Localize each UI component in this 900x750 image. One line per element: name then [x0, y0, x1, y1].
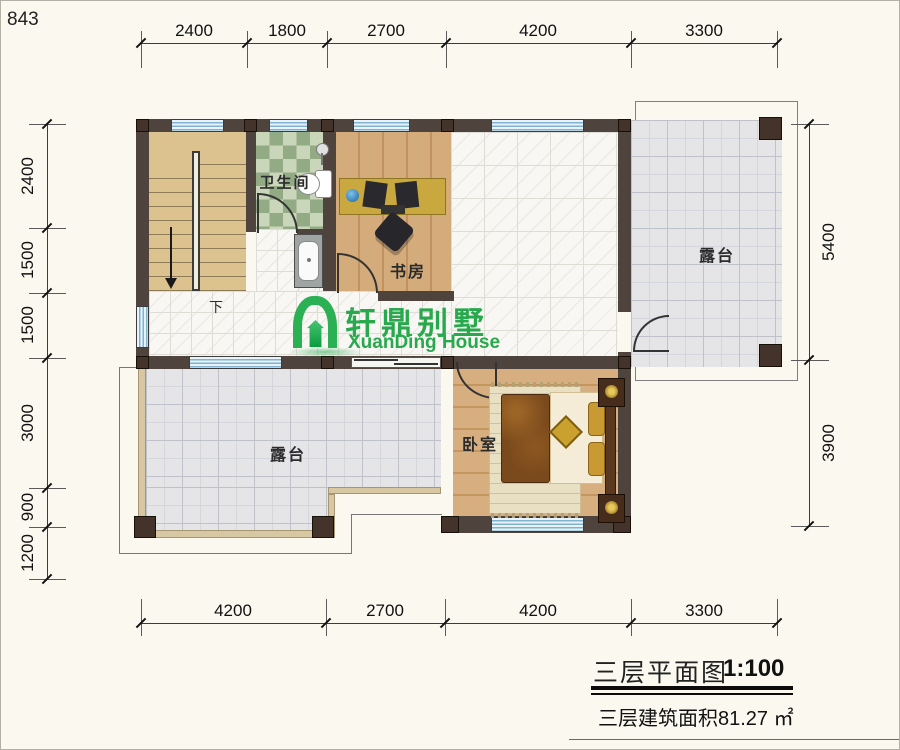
rug-fringe	[491, 382, 579, 387]
sliding-door-panel	[394, 363, 438, 365]
pillow	[588, 402, 605, 436]
dim-top-5: 3300	[685, 21, 723, 41]
area-note: 三层建筑面积81.27 ㎡	[598, 702, 794, 731]
terrace-outline	[119, 553, 352, 554]
dim-tick-mark	[247, 31, 248, 68]
nightstand-knob	[605, 501, 618, 514]
shower-stem	[321, 153, 323, 165]
study-label: 书房	[390, 258, 426, 282]
sink-drain	[307, 258, 311, 262]
terrace-column	[134, 516, 156, 538]
terrace-top-label: 露台	[699, 242, 735, 266]
column	[618, 119, 631, 132]
dim-tick-mark	[141, 599, 142, 636]
dim-left-5: 900	[18, 493, 38, 521]
plan-title: 三层平面图	[593, 653, 728, 689]
terrace-column	[312, 516, 334, 538]
bed-blanket	[501, 394, 550, 483]
dim-bottom-4: 3300	[685, 601, 723, 621]
column	[441, 356, 454, 369]
parapet	[328, 487, 441, 494]
dim-left-1: 2400	[18, 157, 38, 195]
bedroom-label: 卧室	[462, 431, 498, 455]
dim-top-1: 2400	[175, 21, 213, 41]
dim-right-2: 3900	[819, 424, 839, 462]
dim-top-4: 4200	[519, 21, 557, 41]
window	[269, 119, 308, 132]
page-code: 843	[7, 9, 39, 31]
dim-bottom-2: 2700	[366, 601, 404, 621]
window	[189, 356, 282, 369]
dim-line-right	[809, 124, 810, 526]
dim-left-6: 1200	[18, 534, 38, 572]
window	[491, 517, 584, 532]
floor-plan-page: 843 2400 1800 2700 4200 3300 4200 2700 4…	[0, 0, 900, 750]
stair-direction-label: 下	[209, 297, 225, 317]
dim-tick-mark	[777, 599, 778, 636]
window	[136, 306, 149, 348]
dim-right-1: 5400	[819, 223, 839, 261]
column	[618, 356, 631, 369]
window	[491, 119, 584, 132]
title-rule-thick	[591, 686, 793, 690]
column	[136, 119, 149, 132]
dim-left-3: 1500	[18, 306, 38, 344]
dim-line-bottom	[141, 623, 777, 624]
wall	[323, 132, 336, 291]
terrace-outline	[351, 514, 352, 554]
bathroom-label: 卫生间	[259, 172, 310, 193]
dim-bottom-1: 4200	[214, 601, 252, 621]
dim-tick-mark	[327, 31, 328, 68]
terrace-outline	[119, 367, 120, 554]
dim-left-4: 3000	[18, 404, 38, 442]
window	[171, 119, 224, 132]
column	[321, 119, 334, 132]
sliding-door-panel	[354, 359, 398, 361]
stair-flight-right	[200, 151, 246, 291]
parapet	[138, 368, 146, 538]
terrace-door-leaf	[633, 350, 669, 352]
dim-tick-mark	[631, 599, 632, 636]
column	[441, 119, 454, 132]
dim-line-left	[47, 124, 48, 579]
dim-tick-mark	[631, 31, 632, 68]
title-block-divider	[569, 739, 899, 740]
dim-left-2: 1500	[18, 241, 38, 279]
terrace-bottom-floor	[146, 368, 441, 487]
pillow	[588, 442, 605, 476]
column	[321, 356, 334, 369]
terrace-column	[759, 344, 782, 367]
terrace-column	[759, 117, 782, 140]
terrace-bottom-label: 露台	[270, 441, 306, 465]
bathroom-door-leaf	[257, 193, 259, 233]
terrace-bottom-floor	[146, 487, 328, 531]
globe	[346, 189, 359, 202]
parapet	[138, 530, 334, 538]
terrace-outline	[351, 514, 442, 515]
stair-arrow-shaft	[170, 227, 172, 279]
dim-tick-mark	[326, 599, 327, 636]
column	[244, 119, 257, 132]
dim-tick-mark	[141, 31, 142, 68]
nightstand-knob	[605, 385, 618, 398]
stair-arrow-head	[165, 278, 177, 289]
dim-line-top	[141, 43, 777, 44]
dim-tick-mark	[777, 31, 778, 68]
rug-fringe	[491, 513, 579, 518]
logo-name-en: XuanDing House	[348, 332, 500, 354]
study-door-leaf	[337, 253, 339, 293]
title-rule-thin	[591, 693, 793, 695]
dim-tick-mark	[445, 599, 446, 636]
column	[136, 356, 149, 369]
wall	[618, 119, 631, 312]
dim-tick-mark	[446, 31, 447, 68]
dim-top-2: 1800	[268, 21, 306, 41]
stair-handrail	[192, 151, 200, 291]
dim-top-3: 2700	[367, 21, 405, 41]
wall	[246, 132, 256, 232]
dim-bottom-3: 4200	[519, 601, 557, 621]
column	[441, 516, 459, 533]
plan-scale: 1:100	[723, 655, 784, 683]
window	[353, 119, 410, 132]
